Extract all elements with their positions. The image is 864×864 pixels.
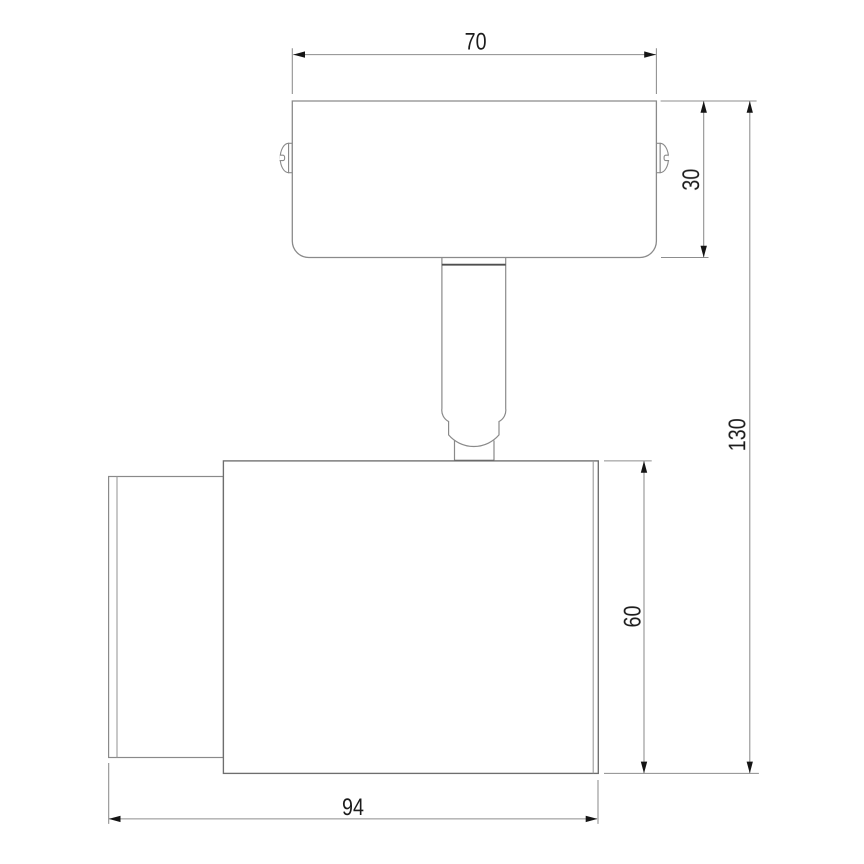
svg-text:94: 94	[342, 794, 364, 821]
svg-text:70: 70	[465, 29, 487, 56]
svg-text:30: 30	[678, 169, 705, 191]
svg-text:60: 60	[619, 606, 646, 628]
svg-text:130: 130	[724, 418, 751, 451]
